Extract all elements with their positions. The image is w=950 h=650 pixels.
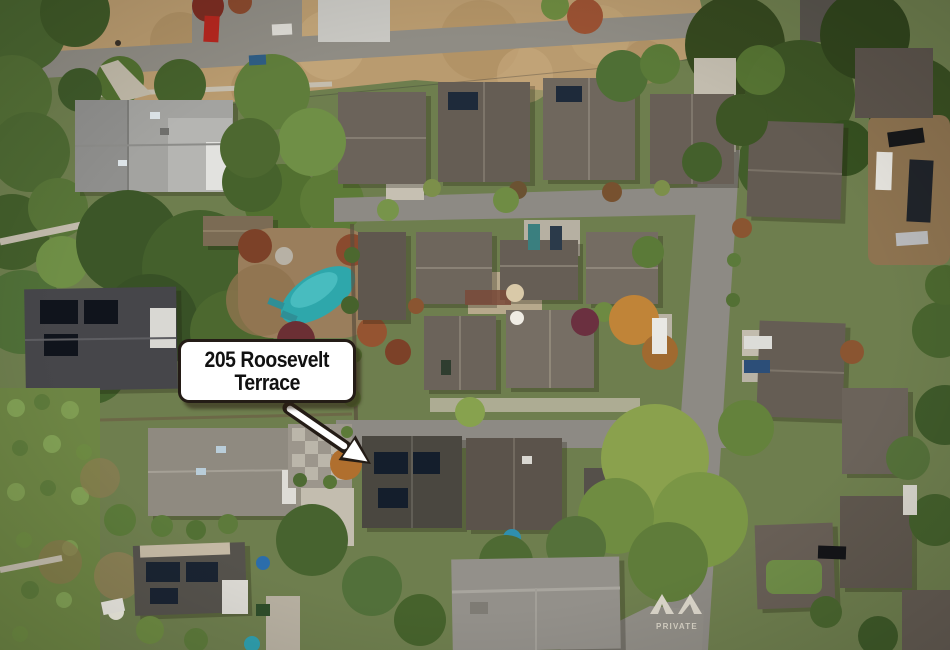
address-label: 205 Roosevelt Terrace — [178, 339, 356, 403]
autumn-tree — [385, 339, 411, 365]
skylight — [150, 112, 160, 119]
boat — [906, 159, 933, 222]
solar-panels — [186, 562, 218, 582]
scene-shape — [732, 218, 752, 238]
garden — [0, 388, 100, 650]
scene-shape — [341, 296, 359, 314]
awning — [256, 604, 270, 616]
scene-shape — [886, 436, 930, 480]
scene-shape — [726, 293, 740, 307]
scene-shape — [34, 394, 50, 410]
scene-shape — [377, 199, 399, 221]
house-roof — [902, 590, 950, 650]
skylight — [196, 468, 206, 475]
scene-shape — [80, 458, 120, 498]
car — [818, 546, 846, 560]
scene-shape — [186, 520, 206, 540]
solar-panels — [448, 92, 478, 110]
solar-panels — [412, 452, 440, 474]
car — [272, 23, 293, 35]
solar-panels — [378, 488, 408, 508]
car — [903, 485, 917, 515]
driveway — [266, 596, 300, 650]
scene-shape — [602, 182, 622, 202]
autumn-tree — [330, 448, 362, 480]
scene-shape — [342, 556, 402, 616]
car — [249, 55, 267, 66]
scene-shape — [455, 397, 485, 427]
car — [652, 318, 667, 354]
car — [744, 336, 772, 349]
car — [875, 152, 892, 191]
scene-shape — [640, 44, 680, 84]
scene-shape — [305, 467, 318, 480]
solar-panels — [556, 86, 582, 102]
car — [896, 231, 929, 246]
scene-shape — [7, 399, 25, 417]
scene-shape — [218, 514, 238, 534]
pedestrian — [115, 40, 121, 46]
address-line-1: 205 Roosevelt — [205, 348, 329, 371]
house-roof — [840, 496, 912, 588]
scene-shape — [220, 118, 280, 178]
solar-panels — [44, 334, 78, 356]
house-roof — [855, 48, 933, 118]
scene-shape — [493, 187, 519, 213]
scene-shape — [394, 594, 446, 646]
deck — [465, 290, 511, 305]
aerial-photo: PRIVATE — [0, 0, 950, 650]
scene-shape — [293, 473, 307, 487]
scene-shape — [222, 580, 248, 614]
scene-shape — [12, 626, 28, 642]
scene-shape — [150, 308, 176, 348]
patio-umbrella — [506, 284, 524, 302]
scene-shape — [276, 504, 348, 576]
scene-shape — [21, 581, 39, 599]
skylight — [216, 446, 226, 453]
scene-shape — [7, 483, 25, 501]
scene-shape — [682, 142, 722, 182]
house-roof — [318, 0, 390, 42]
house-roof — [358, 232, 406, 320]
scene-shape — [718, 400, 774, 456]
autumn-tree — [571, 308, 599, 336]
scene-shape — [292, 428, 305, 441]
dormer — [470, 602, 488, 614]
address-line-2: Terrace — [234, 371, 299, 394]
car — [550, 226, 562, 250]
scene-shape — [16, 532, 32, 548]
scene-shape — [305, 441, 318, 454]
chimney — [160, 128, 169, 135]
scene-shape — [76, 444, 92, 460]
scene-shape — [423, 179, 441, 197]
ac-unit — [522, 456, 532, 464]
car — [528, 224, 540, 250]
scene-shape — [104, 504, 136, 536]
solar-panels — [150, 588, 178, 604]
trash-bin — [441, 360, 451, 375]
scene-shape — [341, 426, 353, 438]
scene-shape — [278, 108, 346, 176]
road-marking-text: PRIVATE — [656, 622, 698, 631]
scene-shape — [596, 50, 648, 102]
scene-shape — [151, 515, 173, 537]
scene-shape — [12, 440, 28, 456]
scene-shape — [654, 180, 670, 196]
scene-shape — [43, 435, 61, 453]
lawn — [766, 560, 822, 594]
solar-panels — [40, 300, 78, 324]
scene-shape — [136, 616, 164, 644]
scene-shape — [735, 45, 785, 95]
scene-shape — [61, 401, 79, 419]
solar-panels — [84, 300, 118, 324]
scene-shape — [323, 475, 337, 489]
aerial-photo-view: PRIVATE 205 Roosevelt Terrace — [0, 0, 950, 650]
solar-panels — [146, 562, 180, 582]
car — [744, 360, 770, 373]
scene-shape — [840, 340, 864, 364]
scene-shape — [56, 592, 72, 608]
scene-shape — [810, 596, 842, 628]
scene-shape — [344, 247, 360, 263]
skylight — [118, 160, 127, 166]
scene-shape — [628, 522, 708, 602]
patio-umbrella — [510, 311, 524, 325]
scene-shape — [318, 428, 331, 441]
scene-shape — [318, 454, 331, 467]
patio-umbrella — [256, 556, 270, 570]
car — [203, 16, 219, 43]
scene-shape — [40, 480, 56, 496]
scene-shape — [727, 253, 741, 267]
scene-shape — [632, 236, 664, 268]
scene-shape — [408, 298, 424, 314]
solar-panels — [374, 452, 408, 474]
scene-shape — [716, 94, 768, 146]
scene-shape — [292, 454, 305, 467]
autumn-tree — [238, 229, 272, 263]
scene-shape — [275, 247, 293, 265]
